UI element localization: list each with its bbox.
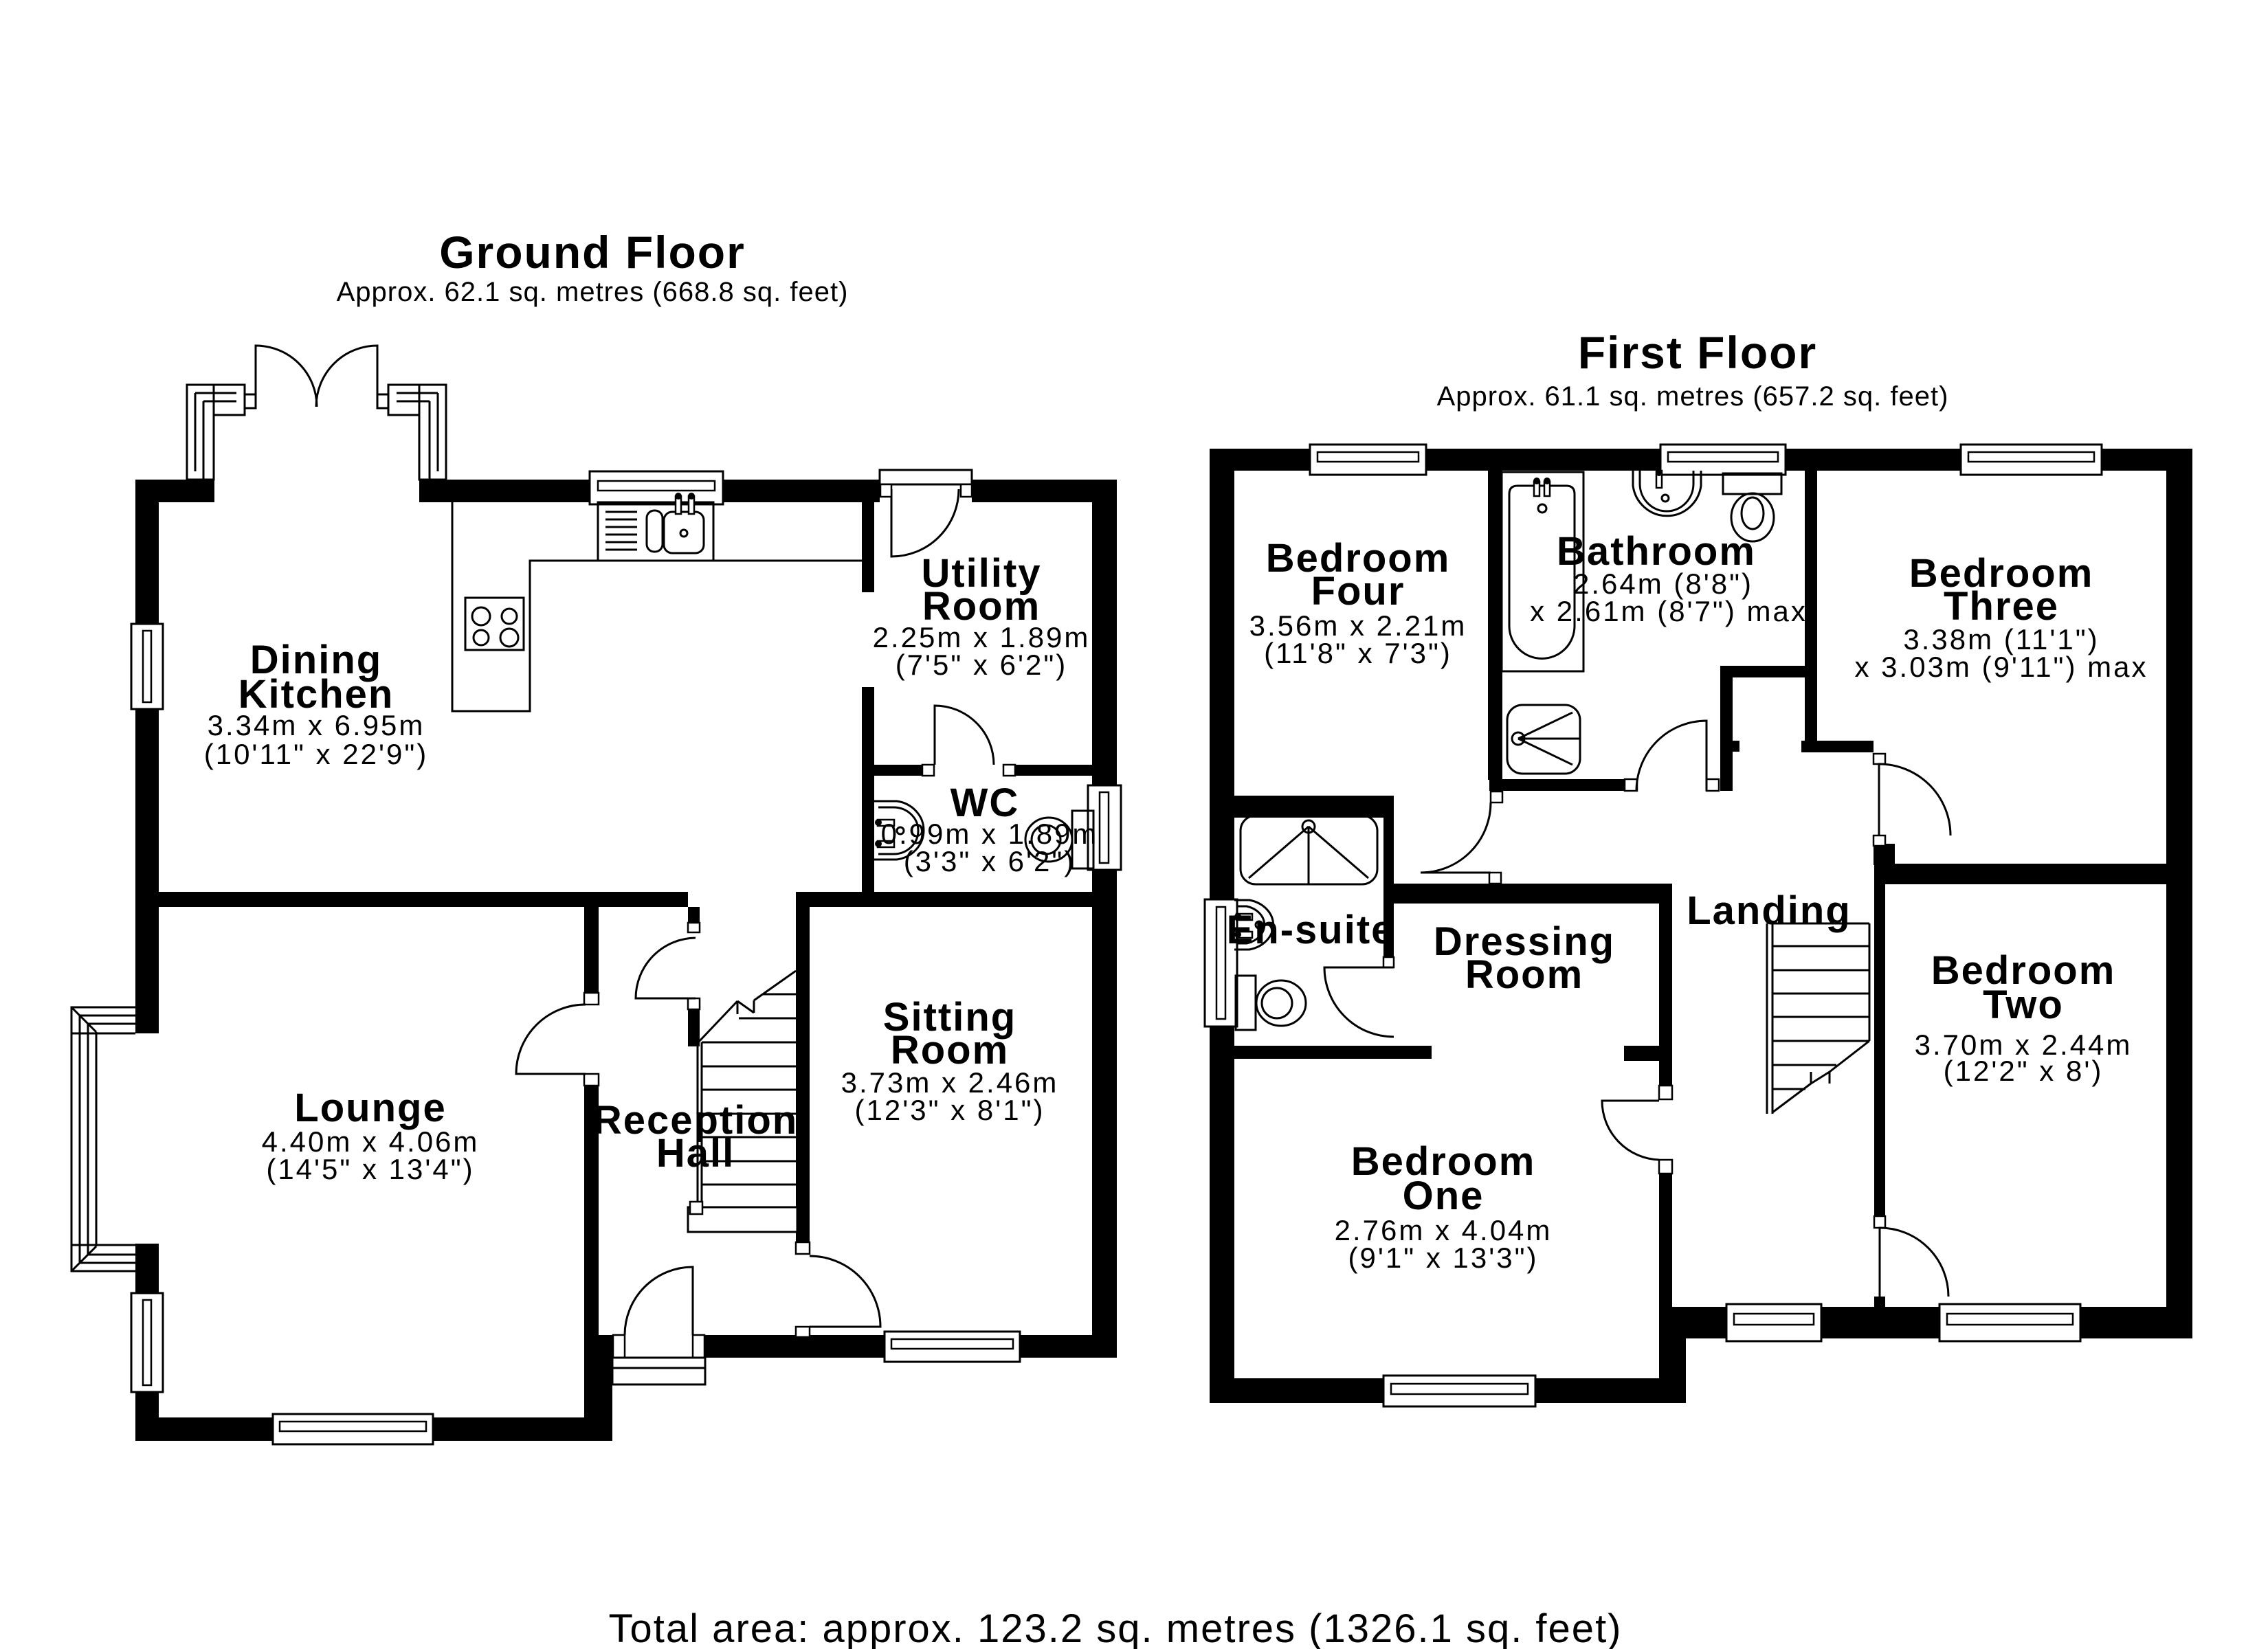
svg-text:(12'3" x 8'1"): (12'3" x 8'1") — [855, 1094, 1045, 1126]
svg-text:Approx. 61.1 sq. metres (657.2: Approx. 61.1 sq. metres (657.2 sq. feet) — [1437, 381, 1949, 412]
svg-text:Approx. 62.1 sq. metres (668.8: Approx. 62.1 sq. metres (668.8 sq. feet) — [337, 277, 849, 307]
svg-text:Three: Three — [1944, 584, 2059, 629]
svg-text:Room: Room — [1465, 952, 1583, 997]
svg-text:Landing: Landing — [1687, 888, 1852, 933]
svg-text:Total area: approx. 123.2 sq.: Total area: approx. 123.2 sq. metres (13… — [609, 1606, 1623, 1649]
svg-text:(10'11" x 22'9"): (10'11" x 22'9") — [204, 738, 429, 770]
svg-text:(12'2" x 8'): (12'2" x 8') — [1944, 1055, 2104, 1087]
svg-text:(11'8" x 7'3"): (11'8" x 7'3") — [1264, 637, 1452, 669]
svg-text:En-suite: En-suite — [1227, 908, 1395, 952]
svg-text:Hall: Hall — [656, 1131, 735, 1176]
svg-text:Ground Floor: Ground Floor — [439, 227, 746, 278]
svg-text:(3'3" x 6'2"): (3'3" x 6'2") — [904, 845, 1076, 877]
svg-text:Four: Four — [1311, 569, 1405, 614]
svg-text:(14'5" x 13'4"): (14'5" x 13'4") — [266, 1153, 474, 1185]
svg-text:Lounge: Lounge — [294, 1086, 446, 1130]
svg-text:First Floor: First Floor — [1578, 327, 1817, 378]
svg-text:(9'1" x 13'3"): (9'1" x 13'3") — [1348, 1242, 1539, 1274]
svg-text:x 3.03m (9'11") max: x 3.03m (9'11") max — [1855, 651, 2148, 683]
svg-text:Two: Two — [1983, 983, 2064, 1027]
svg-text:(7'5" x 6'2"): (7'5" x 6'2") — [896, 649, 1068, 681]
svg-text:One: One — [1403, 1174, 1485, 1218]
svg-text:3.34m x 6.95m: 3.34m x 6.95m — [208, 709, 425, 741]
svg-text:x 2.61m (8'7") max: x 2.61m (8'7") max — [1530, 595, 1808, 627]
